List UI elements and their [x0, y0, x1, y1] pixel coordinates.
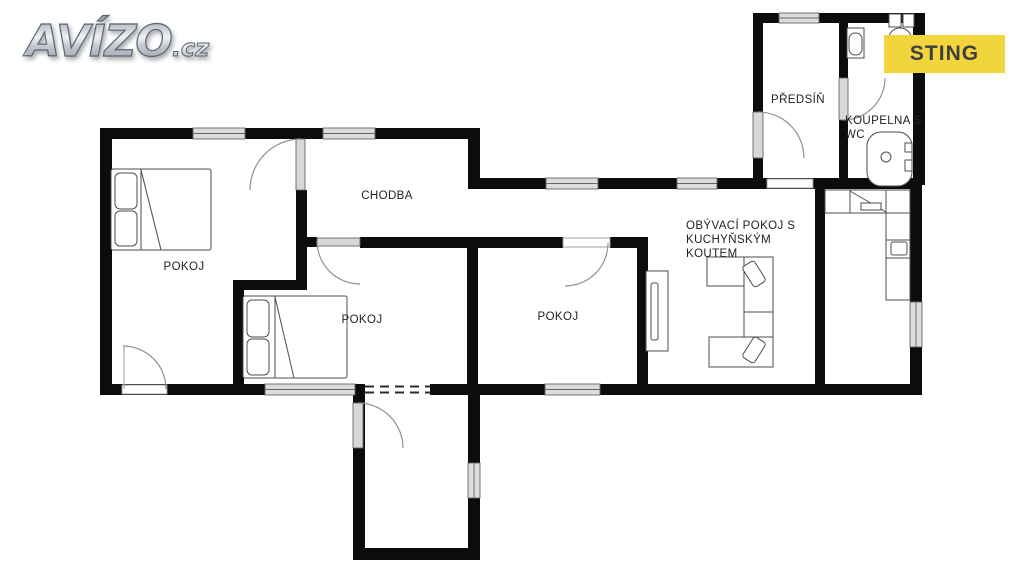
door-arc-predsin: [758, 112, 804, 158]
door-arc-pokoj2: [317, 241, 360, 284]
fixtures: [111, 14, 914, 378]
window: [193, 128, 245, 139]
window: [677, 178, 717, 189]
window: [910, 302, 922, 347]
window: [265, 384, 355, 395]
room-label-pokoj-1: POKOJ: [144, 260, 224, 274]
room-label-pokoj-2: POKOJ: [322, 313, 402, 327]
window: [323, 128, 375, 139]
avizo-logo-text: AVÍZO: [26, 16, 172, 67]
avizo-logo: AVÍZO.cz: [26, 16, 209, 67]
door-arc-pokoj3: [565, 243, 608, 286]
door-arc-pokoj1: [250, 139, 301, 190]
sting-badge: STING: [884, 35, 1005, 73]
double-bed-icon: [243, 296, 347, 378]
floor-plan: [0, 0, 1024, 576]
window: [546, 178, 598, 189]
tv-sideboard-icon: [646, 271, 668, 351]
room-label-pokoj-3: POKOJ: [518, 310, 598, 324]
window: [779, 13, 819, 23]
washbasin-icon: [847, 28, 864, 58]
room-label-koupelna: KOUPELNA S WC: [845, 114, 925, 142]
double-bed-icon: [111, 169, 211, 250]
corner-sofa-icon: [707, 257, 773, 367]
room-label-chodba: CHODBA: [347, 189, 427, 203]
dashed-opening: [365, 387, 430, 393]
room-label-obyvaci: OBÝVACÍ POKOJ S KUCHYŇSKÝM KOUTEM: [686, 219, 820, 261]
kitchen-counter-icon: [825, 190, 910, 300]
avizo-logo-suffix: .cz: [172, 34, 209, 62]
room-label-predsin: PŘEDSÍŇ: [762, 93, 834, 107]
floor-plan-image: PŘEDSÍŇ KOUPELNA S WC CHODBA POKOJ POKOJ…: [0, 0, 1024, 576]
window: [468, 463, 480, 498]
door-arc-pokoj1-bottom: [123, 346, 166, 389]
window: [545, 384, 600, 395]
